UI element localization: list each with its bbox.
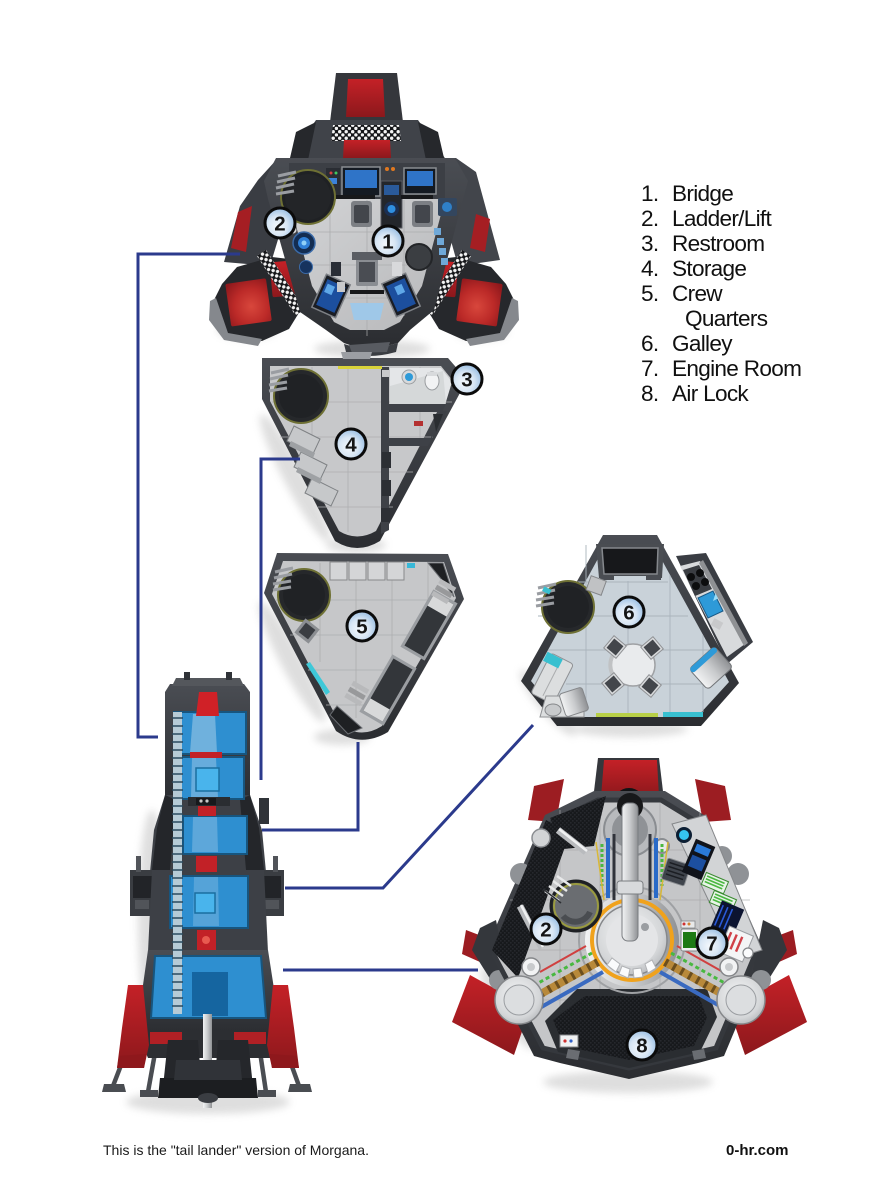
svg-text:5.: 5.: [641, 281, 658, 306]
svg-text:Engine Room: Engine Room: [672, 356, 801, 381]
svg-text:Quarters: Quarters: [685, 306, 768, 331]
svg-text:8.: 8.: [641, 381, 658, 406]
svg-text:Storage: Storage: [672, 256, 746, 281]
svg-text:1.: 1.: [641, 181, 658, 206]
svg-text:2: 2: [274, 213, 285, 236]
svg-text:6: 6: [623, 602, 634, 625]
svg-text:Ladder/Lift: Ladder/Lift: [672, 206, 772, 231]
svg-text:3: 3: [461, 369, 472, 392]
svg-text:2.: 2.: [641, 206, 658, 231]
svg-text:3.: 3.: [641, 231, 658, 256]
svg-text:This is the "tail lander" vers: This is the "tail lander" version of Mor…: [103, 1142, 369, 1158]
svg-text:Bridge: Bridge: [672, 181, 733, 206]
svg-text:Crew: Crew: [672, 281, 723, 306]
svg-text:0-hr.com: 0-hr.com: [726, 1142, 789, 1159]
svg-text:4: 4: [345, 434, 357, 457]
svg-text:Air Lock: Air Lock: [672, 381, 749, 406]
svg-text:2: 2: [540, 919, 551, 942]
svg-text:1: 1: [382, 231, 393, 254]
svg-text:5: 5: [356, 616, 367, 639]
svg-text:6.: 6.: [641, 331, 658, 356]
svg-text:8: 8: [636, 1035, 647, 1058]
svg-text:7: 7: [706, 933, 717, 956]
svg-text:4.: 4.: [641, 256, 658, 281]
svg-text:7.: 7.: [641, 356, 658, 381]
svg-text:Restroom: Restroom: [672, 231, 764, 256]
svg-text:Galley: Galley: [672, 331, 733, 356]
